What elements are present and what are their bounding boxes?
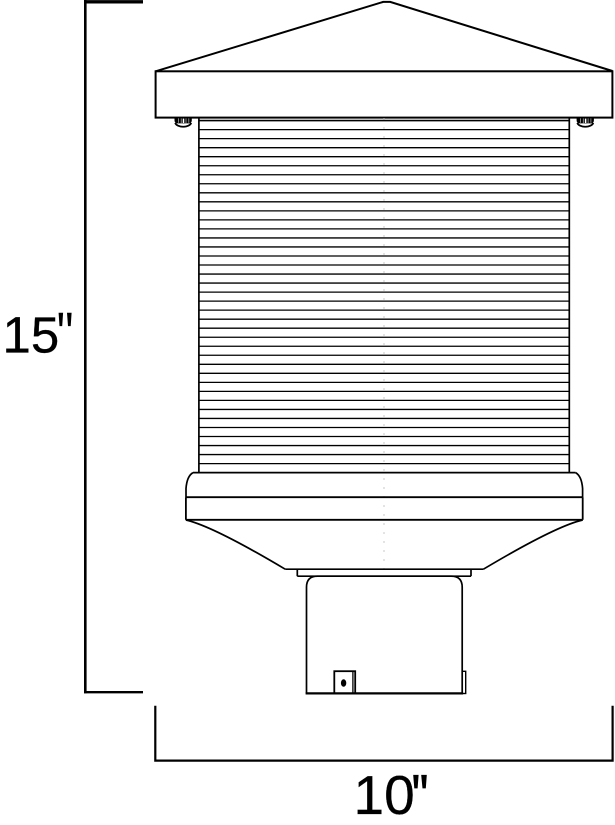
svg-text:10: 10 (354, 764, 415, 825)
svg-text:15: 15 (3, 306, 60, 363)
